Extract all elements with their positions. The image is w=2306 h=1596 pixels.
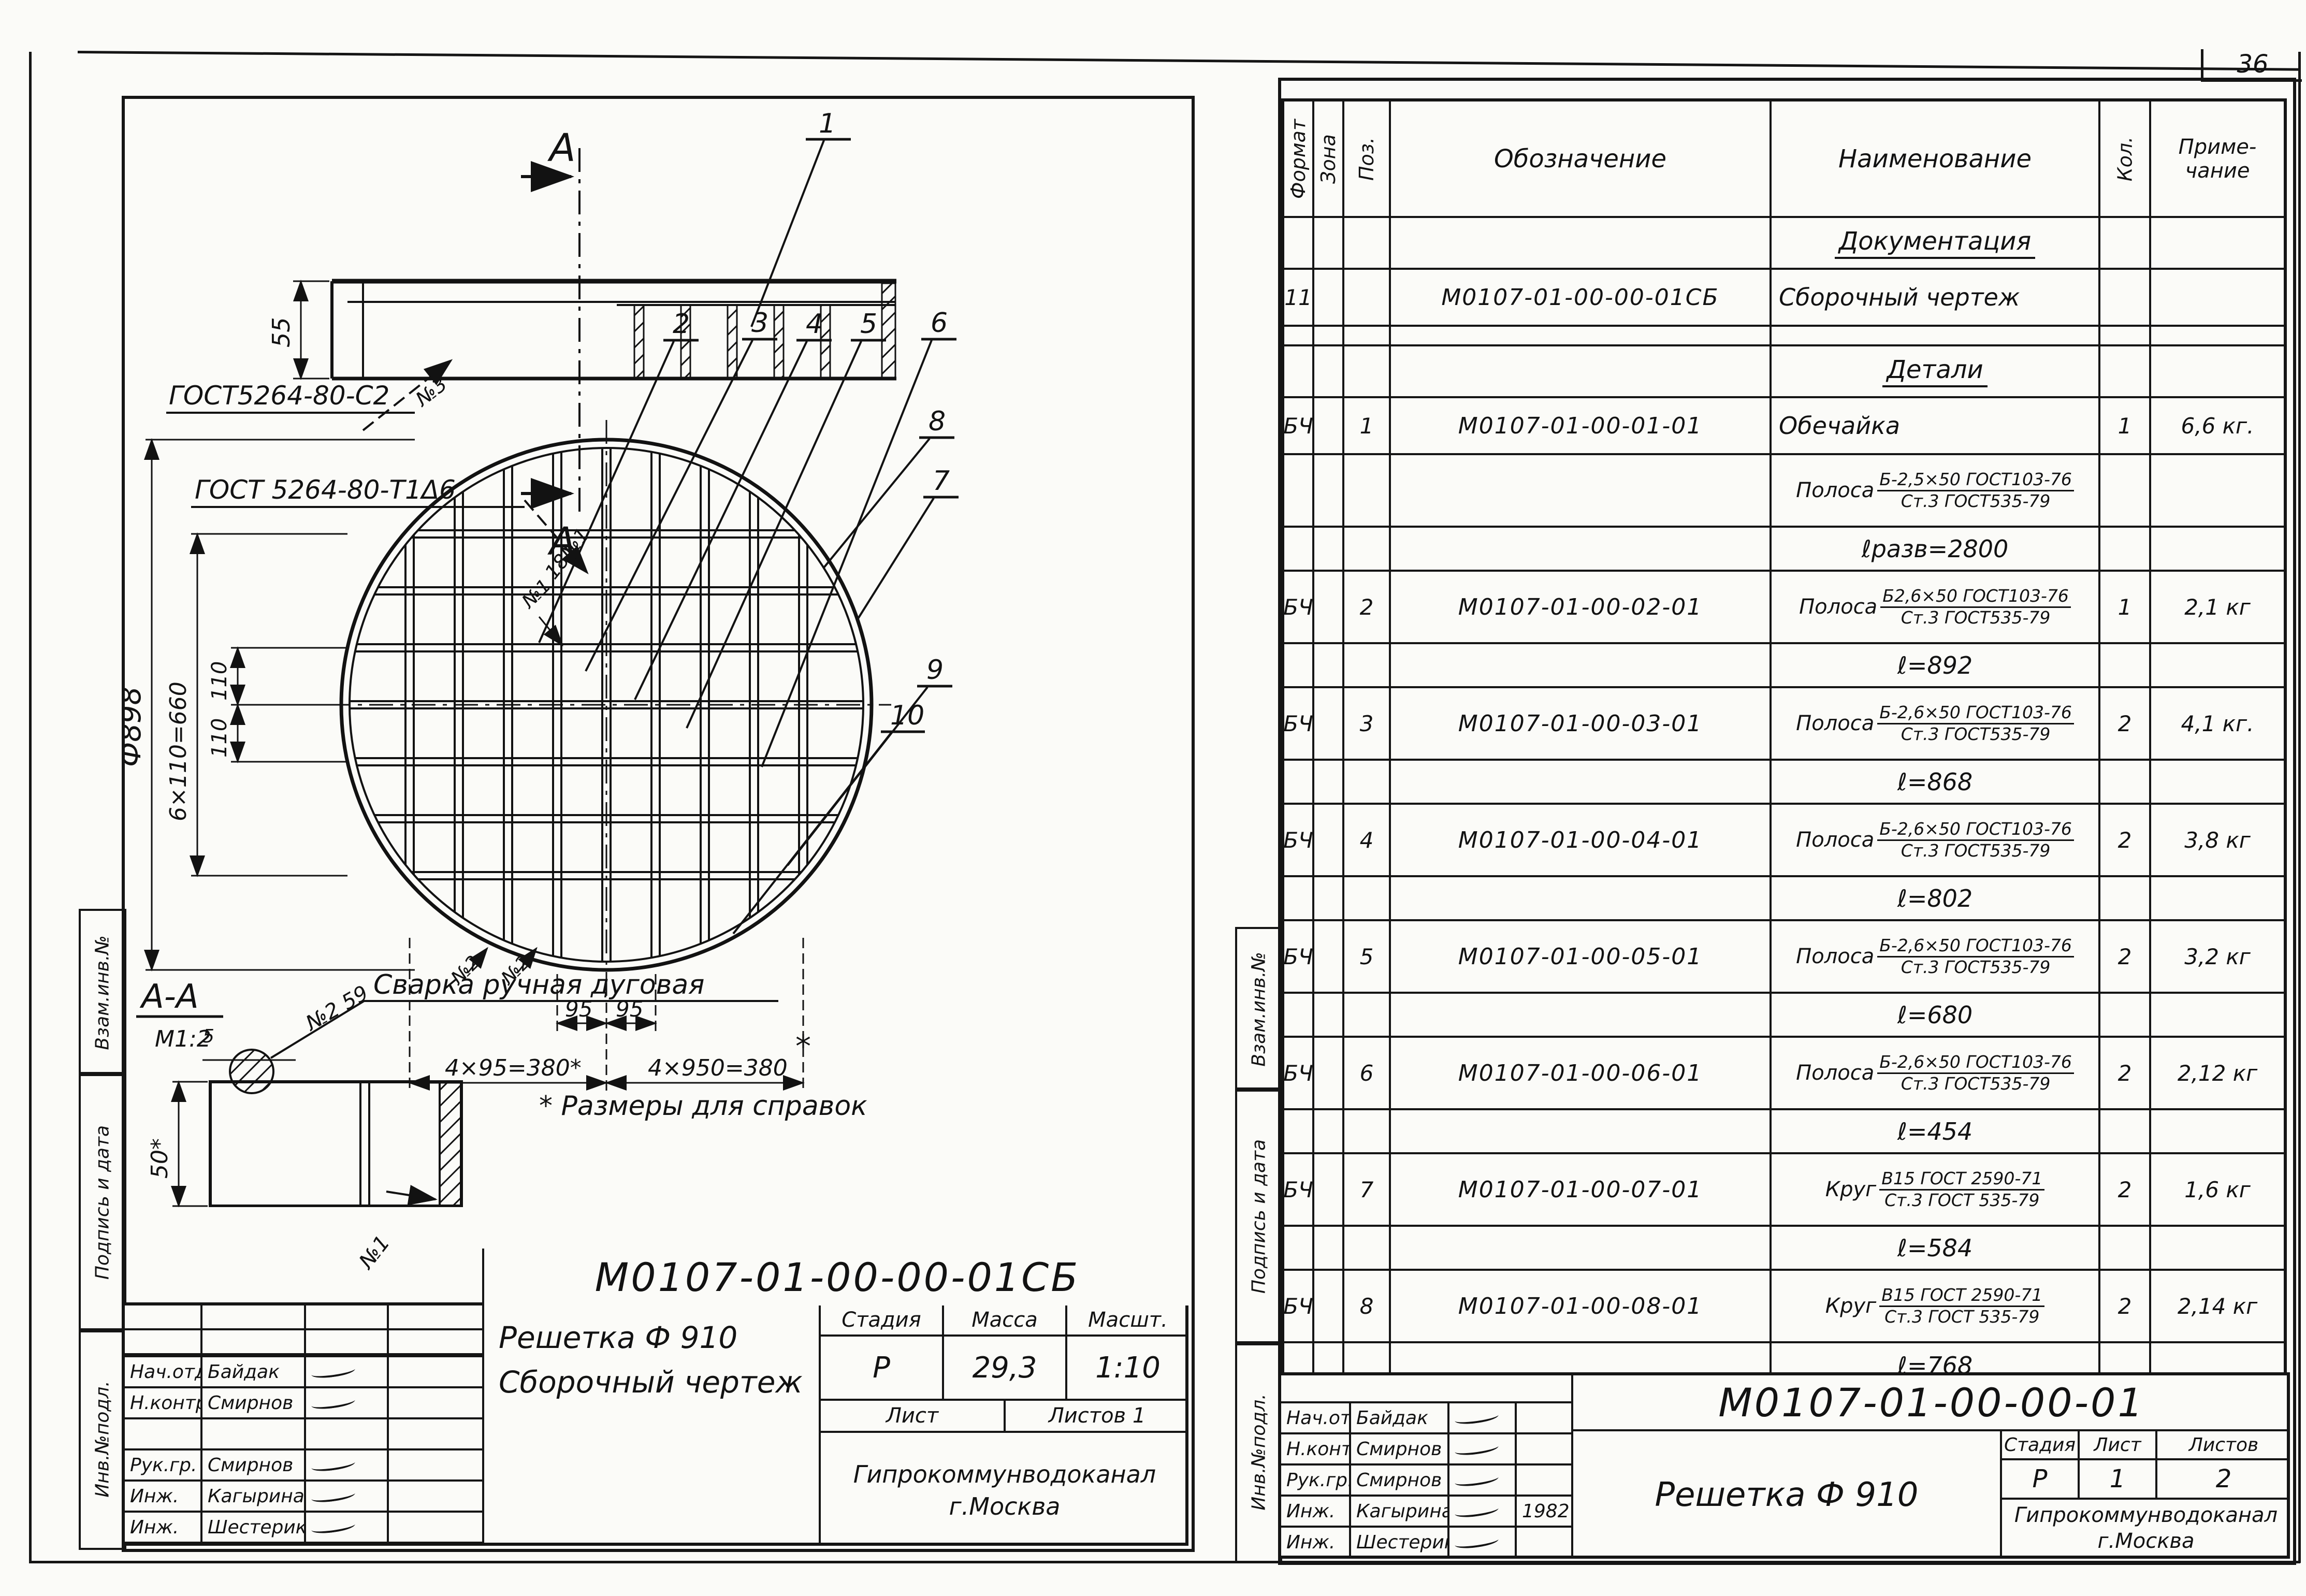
rv-sheets: 2 bbox=[2157, 1460, 2290, 1498]
spec-cell bbox=[2100, 877, 2151, 919]
spec-row-part-4: БЧ1М0107-01-00-01-01Обечайка16,6 кг. bbox=[1284, 398, 2284, 455]
right-stage-grid: Стадия Лист Листов Р 1 2 Гипрокоммунводо… bbox=[2000, 1431, 2290, 1559]
weld-no2-59: №2 59 bbox=[301, 981, 372, 1036]
rh-sheet: Лист bbox=[2080, 1431, 2157, 1458]
spec-name-cell: КругВ15 ГОСТ 2590-71Ст.3 ГОСТ 535-79 bbox=[1772, 1271, 2100, 1341]
spec-designation: М0107-01-00-08-01 bbox=[1391, 1271, 1772, 1341]
dim-380-right: 4×950=380 bbox=[648, 1055, 788, 1081]
spec-header-row: Формат Зона Поз. Обозначение Наименовани… bbox=[1284, 101, 2284, 218]
right-strip-inv-label: Инв.№подл. bbox=[1248, 1394, 1269, 1510]
spec-cell bbox=[1314, 572, 1344, 642]
callout-6: 6 bbox=[931, 308, 948, 339]
role-date bbox=[389, 1357, 482, 1386]
spec-qty: 2 bbox=[2100, 1154, 2151, 1225]
spec-cell bbox=[1284, 346, 1314, 396]
spec-cell bbox=[1344, 644, 1391, 686]
role-name bbox=[202, 1419, 306, 1448]
spec-material: КругВ15 ГОСТ 2590-71Ст.3 ГОСТ 535-79 bbox=[1825, 1286, 2045, 1326]
dim-110-a: 110 bbox=[208, 661, 231, 701]
spec-format: БЧ bbox=[1284, 805, 1314, 875]
spec-row-length-10: ℓ=868 bbox=[1284, 761, 2284, 805]
role-label: Инж. bbox=[125, 1513, 202, 1542]
right-strip-vzam-label: Взам.инв.№ bbox=[1248, 952, 1269, 1067]
spec-cell bbox=[2151, 1110, 2284, 1152]
spec-cell bbox=[2151, 761, 2284, 803]
spec-pos: 5 bbox=[1344, 921, 1391, 992]
rh-stage: Стадия bbox=[2002, 1431, 2080, 1458]
spec-cell bbox=[1284, 1110, 1314, 1152]
col-qty: Кол. bbox=[2113, 136, 2136, 181]
spec-designation: М0107-01-00-00-01СБ bbox=[1391, 270, 1772, 325]
revision-cell bbox=[389, 1305, 482, 1328]
spec-material: ПолосаБ-2,5×50 ГОСТ103-76Ст.3 ГОСТ535-79 bbox=[1796, 471, 2074, 510]
left-strip-podpis-label: Подпись и дата bbox=[92, 1125, 113, 1279]
spec-qty: 1 bbox=[2100, 398, 2151, 453]
role-row-2 bbox=[125, 1419, 482, 1450]
left-roles-grid: Нач.отд.БайдакН.контр.СмирновРук.гр.Смир… bbox=[125, 1355, 482, 1548]
spec-section-title: Детали bbox=[1882, 355, 1987, 387]
role-signature bbox=[306, 1357, 389, 1386]
revision-cell bbox=[202, 1305, 306, 1328]
left-strip-inv: Инв.№подл. bbox=[79, 1328, 126, 1550]
spec-name-cell bbox=[1772, 327, 2100, 344]
role-name: Байдак bbox=[202, 1357, 306, 1386]
spec-cell bbox=[2100, 327, 2151, 344]
spec-cell bbox=[1314, 688, 1344, 759]
callout-4: 4 bbox=[806, 309, 823, 340]
role-label: Н.контр. bbox=[125, 1388, 202, 1417]
spec-pos bbox=[1344, 270, 1391, 325]
spec-qty: 2 bbox=[2100, 1271, 2151, 1341]
spec-material: КругВ15 ГОСТ 2590-71Ст.3 ГОСТ 535-79 bbox=[1825, 1170, 2045, 1209]
spec-material: ПолосаБ-2,6×50 ГОСТ103-76Ст.3 ГОСТ535-79 bbox=[1796, 937, 2074, 976]
spec-cell bbox=[1314, 644, 1344, 686]
spec-format: БЧ bbox=[1284, 398, 1314, 453]
revision-cell bbox=[306, 1330, 389, 1353]
role-row-2: Рук.гр.Смирнов bbox=[1281, 1466, 1571, 1497]
spec-row-length-8: ℓ=892 bbox=[1284, 644, 2284, 688]
spec-row-partmat-13: БЧ5М0107-01-00-05-01ПолосаБ-2,6×50 ГОСТ1… bbox=[1284, 921, 2284, 994]
spec-cell bbox=[2151, 455, 2284, 526]
role-signature bbox=[1449, 1403, 1517, 1432]
spec-designation: М0107-01-00-07-01 bbox=[1391, 1154, 1772, 1225]
callout-2: 2 bbox=[673, 309, 690, 340]
right-org: Гипрокоммунводоканал bbox=[2014, 1503, 2278, 1527]
spec-designation: М0107-01-00-03-01 bbox=[1391, 688, 1772, 759]
spec-name-cell: ПолосаБ-2,6×50 ГОСТ103-76Ст.3 ГОСТ535-79 bbox=[1772, 688, 2100, 759]
spec-name-cell: ℓразв=2800 bbox=[1772, 528, 2100, 570]
spec-pos: 8 bbox=[1344, 1271, 1391, 1341]
spec-qty: 1 bbox=[2100, 572, 2151, 642]
right-doc-number: М0107-01-00-00-01 bbox=[1718, 1380, 2145, 1426]
spec-name-cell: ℓ=892 bbox=[1772, 644, 2100, 686]
spec-designation: М0107-01-00-04-01 bbox=[1391, 805, 1772, 875]
spec-length: ℓ=584 bbox=[1897, 1234, 1973, 1262]
right-org-city: г.Москва bbox=[2098, 1529, 2195, 1553]
spec-row-partmat-9: БЧ3М0107-01-00-03-01ПолосаБ-2,6×50 ГОСТ1… bbox=[1284, 688, 2284, 761]
signature-squiggle bbox=[311, 1519, 356, 1535]
role-signature bbox=[306, 1450, 389, 1479]
spec-row-length-12: ℓ=802 bbox=[1284, 877, 2284, 921]
spec-name-cell: ℓ=454 bbox=[1772, 1110, 2100, 1152]
spec-cell bbox=[2100, 1227, 2151, 1269]
spec-cell bbox=[1344, 455, 1391, 526]
spec-name-cell: Детали bbox=[1772, 346, 2100, 396]
spec-row-partmat-17: БЧ7М0107-01-00-07-01КругВ15 ГОСТ 2590-71… bbox=[1284, 1154, 2284, 1227]
spec-pos: 3 bbox=[1344, 688, 1391, 759]
role-date bbox=[389, 1482, 482, 1511]
role-label: Инж. bbox=[1281, 1497, 1351, 1526]
spec-material: ПолосаБ-2,6×50 ГОСТ103-76Ст.3 ГОСТ535-79 bbox=[1796, 820, 2074, 860]
spec-cell bbox=[2100, 346, 2151, 396]
role-name: Байдак bbox=[1351, 1403, 1449, 1432]
role-name: Кагырина bbox=[202, 1482, 306, 1511]
signature-squiggle bbox=[1454, 1534, 1499, 1550]
role-date bbox=[389, 1419, 482, 1448]
role-signature bbox=[306, 1419, 389, 1448]
role-row-1: Н.контр.Смирнов bbox=[125, 1388, 482, 1419]
role-date bbox=[389, 1388, 482, 1417]
role-label: Инж. bbox=[1281, 1528, 1351, 1557]
right-strip-podpis: Подпись и дата bbox=[1235, 1087, 1282, 1345]
role-row-5: Инж.Шестериков bbox=[125, 1513, 482, 1544]
revision-cell bbox=[389, 1330, 482, 1353]
dim-6x110: 6×110=660 bbox=[165, 681, 192, 821]
spec-cell bbox=[2100, 1110, 2151, 1152]
spec-cell bbox=[1344, 218, 1391, 268]
col-note-2: чание bbox=[2185, 159, 2250, 183]
dim-50: 50* bbox=[147, 1138, 173, 1179]
spec-format: БЧ bbox=[1284, 572, 1314, 642]
role-date bbox=[389, 1513, 482, 1542]
spec-cell bbox=[1284, 327, 1314, 344]
spec-cell bbox=[1391, 218, 1772, 268]
spec-note: 3,8 кг bbox=[2151, 805, 2284, 875]
role-signature bbox=[1449, 1528, 1517, 1557]
role-label: Н.контр. bbox=[1281, 1434, 1351, 1463]
spec-qty: 2 bbox=[2100, 921, 2151, 992]
h-scale: Масшт. bbox=[1067, 1305, 1188, 1334]
role-name: Смирнов bbox=[202, 1450, 306, 1479]
spec-cell bbox=[1284, 761, 1314, 803]
spec-cell bbox=[1391, 761, 1772, 803]
spec-cell bbox=[1391, 994, 1772, 1036]
right-doc-number-cell: М0107-01-00-00-01 bbox=[1571, 1375, 2290, 1431]
spec-cell bbox=[2100, 994, 2151, 1036]
spec-designation: М0107-01-00-05-01 bbox=[1391, 921, 1772, 992]
v-scale: 1:10 bbox=[1067, 1337, 1188, 1399]
revision-cell bbox=[125, 1305, 202, 1328]
spec-section-title: Документация bbox=[1835, 227, 2036, 259]
h-sheets: Листов 1 bbox=[1006, 1401, 1188, 1431]
left-title-block: Нач.отд.БайдакН.контр.СмирновРук.гр.Смир… bbox=[122, 1302, 1188, 1546]
left-doc-number: М0107-01-00-00-01СБ bbox=[595, 1254, 1080, 1300]
ref-note: * Размеры для справок bbox=[539, 1091, 867, 1122]
role-label: Инж. bbox=[125, 1482, 202, 1511]
role-signature bbox=[1449, 1497, 1517, 1526]
dim-110-b: 110 bbox=[208, 718, 231, 758]
spec-length: ℓ=868 bbox=[1897, 768, 1973, 796]
v-mass: 29,3 bbox=[944, 1337, 1067, 1399]
spec-name-cell: ПолосаБ2,6×50 ГОСТ103-76Ст.3 ГОСТ535-79 bbox=[1772, 572, 2100, 642]
spec-cell bbox=[2151, 994, 2284, 1036]
spec-cell bbox=[1314, 346, 1344, 396]
v-stage: Р bbox=[821, 1337, 944, 1399]
right-title-block: Нач.отдБайдакН.контр.СмирновРук.гр.Смирн… bbox=[1278, 1372, 2290, 1559]
role-row-1: Н.контр.Смирнов bbox=[1281, 1434, 1571, 1466]
spec-name-cell: ПолосаБ-2,6×50 ГОСТ103-76Ст.3 ГОСТ535-79 bbox=[1772, 805, 2100, 875]
signature-squiggle bbox=[311, 1488, 356, 1504]
spec-length: ℓ=680 bbox=[1897, 1001, 1973, 1029]
spec-row-gap-2 bbox=[1284, 327, 2284, 346]
spec-name-cell: Сборочный чертеж bbox=[1772, 270, 2100, 325]
role-signature bbox=[306, 1482, 389, 1511]
spec-format: БЧ bbox=[1284, 1154, 1314, 1225]
dim-380-left: 4×95=380* bbox=[445, 1055, 582, 1081]
spec-cell bbox=[1314, 1271, 1344, 1341]
spec-note bbox=[2151, 270, 2284, 325]
spec-format: 11 bbox=[1284, 270, 1314, 325]
section-letter-top: А bbox=[547, 126, 576, 170]
left-doc-type: Сборочный чертеж bbox=[499, 1365, 819, 1400]
spec-format: БЧ bbox=[1284, 1271, 1314, 1341]
spec-pos: 6 bbox=[1344, 1038, 1391, 1108]
spec-cell bbox=[1284, 994, 1314, 1036]
role-name: Смирнов bbox=[1351, 1434, 1449, 1463]
spec-cell bbox=[1391, 327, 1772, 344]
spec-cell bbox=[1314, 455, 1344, 526]
left-org-city: г.Москва bbox=[949, 1492, 1061, 1520]
spec-designation: М0107-01-00-02-01 bbox=[1391, 572, 1772, 642]
gost-c2-label: ГОСТ5264-80-С2 bbox=[169, 381, 389, 411]
dim-380-star: * bbox=[795, 1028, 811, 1065]
role-label: Рук.гр. bbox=[1281, 1466, 1351, 1495]
spec-cell bbox=[1284, 218, 1314, 268]
revision-row-0 bbox=[125, 1305, 482, 1330]
role-name: Смирнов bbox=[1351, 1466, 1449, 1495]
spec-row-partmat-7: БЧ2М0107-01-00-02-01ПолосаБ2,6×50 ГОСТ10… bbox=[1284, 572, 2284, 644]
spec-qty: 2 bbox=[2100, 1038, 2151, 1108]
role-date bbox=[1517, 1434, 1571, 1463]
spec-cell bbox=[1391, 346, 1772, 396]
col-format: Формат bbox=[1287, 119, 1310, 198]
role-name: Шестериков bbox=[1351, 1528, 1449, 1557]
spec-note: 1,6 кг bbox=[2151, 1154, 2284, 1225]
spec-note: 4,1 кг. bbox=[2151, 688, 2284, 759]
spec-cell bbox=[1391, 1227, 1772, 1269]
dim-5: 5 bbox=[202, 1026, 214, 1047]
role-signature bbox=[1449, 1466, 1517, 1495]
revision-cell bbox=[306, 1305, 389, 1328]
role-signature bbox=[306, 1388, 389, 1417]
role-row-3: Инж.Кагырина1982 bbox=[1281, 1497, 1571, 1528]
spec-cell bbox=[1314, 218, 1344, 268]
revision-row-1 bbox=[125, 1330, 482, 1355]
spec-cell bbox=[1391, 1110, 1772, 1152]
spec-cell bbox=[1314, 398, 1344, 453]
role-label: Нач.отд. bbox=[125, 1357, 202, 1386]
signature-squiggle bbox=[1454, 1472, 1499, 1488]
role-row-3: Рук.гр.Смирнов bbox=[125, 1450, 482, 1482]
spec-name-cell: ℓ=680 bbox=[1772, 994, 2100, 1036]
spec-material: ПолосаБ-2,6×50 ГОСТ103-76Ст.3 ГОСТ535-79 bbox=[1796, 704, 2074, 743]
spec-cell bbox=[2151, 528, 2284, 570]
spec-cell bbox=[1344, 1110, 1391, 1152]
spec-cell bbox=[1314, 761, 1344, 803]
role-name: Шестериков bbox=[202, 1513, 306, 1542]
spec-format: БЧ bbox=[1284, 688, 1314, 759]
role-name: Кагырина bbox=[1351, 1497, 1449, 1526]
left-name-cell: Решетка Ф 910 Сборочный чертеж bbox=[482, 1305, 819, 1546]
page-number-cell: 36 bbox=[2201, 49, 2302, 82]
spec-cell bbox=[1314, 805, 1344, 875]
callout-1: 1 bbox=[819, 108, 836, 139]
spec-name-cell: ПолосаБ-2,6×50 ГОСТ103-76Ст.3 ГОСТ535-79 bbox=[1772, 1038, 2100, 1108]
scan-edge-left bbox=[29, 52, 32, 1563]
right-roles-grid: Нач.отдБайдакН.контр.СмирновРук.гр.Смирн… bbox=[1281, 1401, 1571, 1561]
spec-name-cell: ℓ=868 bbox=[1772, 761, 2100, 803]
signature-squiggle bbox=[311, 1395, 356, 1411]
spec-cell bbox=[1314, 1154, 1344, 1225]
spec-name-cell: ℓ=584 bbox=[1772, 1227, 2100, 1269]
left-org: Гипрокоммунводоканал bbox=[853, 1460, 1156, 1488]
spec-note: 6,6 кг. bbox=[2151, 398, 2284, 453]
spec-row-section-3: Детали bbox=[1284, 346, 2284, 398]
spec-row-length-6: ℓразв=2800 bbox=[1284, 528, 2284, 572]
col-zone: Зона bbox=[1317, 134, 1340, 184]
role-signature bbox=[1449, 1434, 1517, 1463]
specification-table: Формат Зона Поз. Обозначение Наименовани… bbox=[1281, 98, 2287, 1377]
left-strip-inv-label: Инв.№подл. bbox=[92, 1381, 113, 1497]
spec-row-partmat-15: БЧ6М0107-01-00-06-01ПолосаБ-2,6×50 ГОСТ1… bbox=[1284, 1038, 2284, 1110]
spec-cell bbox=[1391, 644, 1772, 686]
spec-cell bbox=[2151, 1227, 2284, 1269]
dim-diameter: Ф898 bbox=[125, 687, 148, 767]
spec-cell bbox=[1391, 528, 1772, 570]
spec-pos: 7 bbox=[1344, 1154, 1391, 1225]
col-pos: Поз. bbox=[1355, 137, 1378, 180]
spec-length: ℓ=454 bbox=[1897, 1118, 1973, 1145]
page-number: 36 bbox=[2237, 50, 2268, 79]
h-sheet: Лист bbox=[821, 1401, 1006, 1431]
spec-name-cell: ПолосаБ-2,6×50 ГОСТ103-76Ст.3 ГОСТ535-79 bbox=[1772, 921, 2100, 992]
weld-no1-tag: №1 bbox=[517, 575, 555, 613]
spec-pos: 4 bbox=[1344, 805, 1391, 875]
spec-material: ПолосаБ-2,6×50 ГОСТ103-76Ст.3 ГОСТ535-79 bbox=[1796, 1053, 2074, 1093]
right-strip-podpis-label: Подпись и дата bbox=[1248, 1139, 1269, 1294]
spec-cell bbox=[1284, 528, 1314, 570]
left-part-name: Решетка Ф 910 bbox=[499, 1320, 819, 1355]
callout-8: 8 bbox=[929, 406, 946, 437]
role-label: Рук.гр. bbox=[125, 1450, 202, 1479]
signature-squiggle bbox=[1454, 1441, 1499, 1457]
role-label bbox=[125, 1419, 202, 1448]
spec-designation: М0107-01-00-06-01 bbox=[1391, 1038, 1772, 1108]
spec-note: 3,2 кг bbox=[2151, 921, 2284, 992]
spec-cell bbox=[2100, 218, 2151, 268]
spec-cell bbox=[2151, 327, 2284, 344]
spec-name-cell: ПолосаБ-2,5×50 ГОСТ103-76Ст.3 ГОСТ535-79 bbox=[1772, 455, 2100, 526]
left-strip-vzam: Взам.инв.№ bbox=[79, 909, 126, 1076]
spec-pos: 1 bbox=[1344, 398, 1391, 453]
col-designation: Обозначение bbox=[1494, 144, 1666, 173]
spec-cell bbox=[2100, 761, 2151, 803]
spec-cell bbox=[1314, 1227, 1344, 1269]
spec-cell bbox=[2151, 218, 2284, 268]
callout-9: 9 bbox=[926, 655, 944, 686]
callout-3: 3 bbox=[751, 308, 768, 339]
role-row-0: Нач.отдБайдак bbox=[1281, 1403, 1571, 1434]
signature-squiggle bbox=[311, 1363, 356, 1380]
role-date bbox=[389, 1450, 482, 1479]
left-stage-grid: Стадия Масса Масшт. Р 29,3 1:10 Лист Лис… bbox=[819, 1305, 1188, 1546]
spec-row-length-18: ℓ=584 bbox=[1284, 1227, 2284, 1271]
spec-material: ПолосаБ2,6×50 ГОСТ103-76Ст.3 ГОСТ535-79 bbox=[1799, 587, 2071, 627]
col-name: Наименование bbox=[1838, 144, 2032, 173]
spec-cell bbox=[1344, 528, 1391, 570]
spec-name-cell: ℓ=802 bbox=[1772, 877, 2100, 919]
spec-cell bbox=[1314, 327, 1344, 344]
spec-cell bbox=[1314, 877, 1344, 919]
spec-cell bbox=[1344, 327, 1391, 344]
callout-7: 7 bbox=[933, 466, 950, 497]
role-date: 1982 bbox=[1517, 1497, 1571, 1526]
rh-sheets: Листов bbox=[2157, 1431, 2290, 1458]
left-empty-grid bbox=[125, 1305, 482, 1355]
spec-cell bbox=[1284, 877, 1314, 919]
spec-note: 2,14 кг bbox=[2151, 1271, 2284, 1341]
spec-cell bbox=[1314, 528, 1344, 570]
gost-t1-label: ГОСТ 5264-80-Т1Δ6 bbox=[195, 475, 456, 505]
right-name-cell: Решетка Ф 910 bbox=[1571, 1431, 2000, 1559]
assembly-drawing: А А 1 55 ГОСТ5264-80-С2 №3 ГОСТ 5264 bbox=[125, 99, 1185, 1207]
revision-cell bbox=[202, 1330, 306, 1353]
spec-row-part-1: 11М0107-01-00-00-01СБСборочный чертеж bbox=[1284, 270, 2284, 327]
spec-row-length-14: ℓ=680 bbox=[1284, 994, 2284, 1038]
spec-cell bbox=[1314, 994, 1344, 1036]
revision-cell bbox=[125, 1330, 202, 1353]
spec-name-cell: Обечайка bbox=[1772, 398, 2100, 453]
right-strip-vzam: Взам.инв.№ bbox=[1235, 927, 1282, 1092]
spec-name-cell: Документация bbox=[1772, 218, 2100, 268]
spec-cell bbox=[1391, 877, 1772, 919]
role-date bbox=[1517, 1466, 1571, 1495]
spec-note: 2,1 кг bbox=[2151, 572, 2284, 642]
spec-qty: 2 bbox=[2100, 805, 2151, 875]
spec-cell bbox=[1344, 1227, 1391, 1269]
signature-squiggle bbox=[1454, 1503, 1499, 1519]
spec-cell bbox=[1314, 1110, 1344, 1152]
spec-qty: 2 bbox=[2100, 688, 2151, 759]
signature-squiggle bbox=[1454, 1410, 1499, 1426]
h-stage: Стадия bbox=[821, 1305, 944, 1334]
spec-cell bbox=[2151, 346, 2284, 396]
spec-cell bbox=[1344, 346, 1391, 396]
left-doc-number-cell: М0107-01-00-00-01СБ bbox=[482, 1249, 1191, 1305]
spec-format: БЧ bbox=[1284, 1038, 1314, 1108]
h-mass: Масса bbox=[944, 1305, 1067, 1334]
signature-squiggle bbox=[311, 1457, 356, 1473]
role-row-0: Нач.отд.Байдак bbox=[125, 1357, 482, 1388]
spec-pos: 2 bbox=[1344, 572, 1391, 642]
spec-cell bbox=[1284, 1227, 1314, 1269]
spec-format: БЧ bbox=[1284, 921, 1314, 992]
spec-cell bbox=[1314, 1038, 1344, 1108]
left-strip-vzam-label: Взам.инв.№ bbox=[92, 935, 113, 1050]
aa-label: А-А bbox=[139, 978, 199, 1016]
right-strip-inv: Инв.№подл. bbox=[1235, 1341, 1282, 1563]
spec-cell bbox=[1391, 455, 1772, 526]
